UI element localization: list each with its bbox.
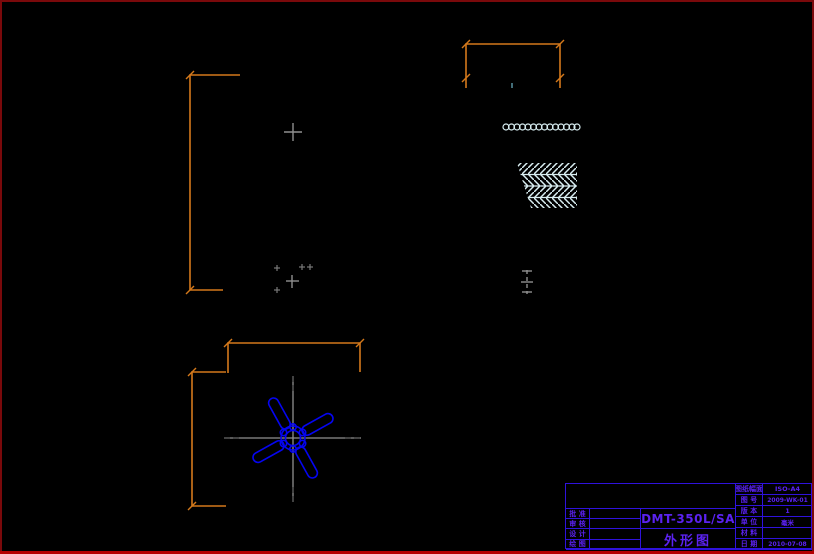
page-border-top (0, 0, 814, 2)
titleblock-check-label: 审 核 (566, 519, 590, 529)
center-mark-cross (284, 123, 302, 141)
bottom-view-centerlines (224, 376, 361, 502)
titleblock-check-value (590, 519, 641, 529)
titleblock-sheetsize-value: ISO-A4 (763, 484, 813, 495)
titleblock-material-label: 材 料 (736, 528, 763, 539)
front-view-center-marks (274, 123, 313, 293)
titleblock-design-label: 设 计 (566, 529, 590, 540)
titleblock-version-value: 1 (763, 506, 813, 517)
front-view-dimension-bracket (186, 71, 240, 294)
drawing-geometry (0, 0, 814, 554)
titleblock-draw-value (590, 540, 641, 551)
side-view-center-mark (521, 270, 533, 294)
small-center-marks (274, 264, 313, 293)
grille-circle-row (503, 124, 580, 130)
center-mark-cross (286, 275, 299, 288)
titleblock-draw-label: 绘 图 (566, 540, 590, 551)
side-view-dimension-bracket (462, 40, 564, 88)
titleblock-product-model: DMT-350L/SA (641, 509, 736, 529)
page-border-left (0, 0, 2, 554)
title-block: 批 准 审 核 设 计 绘 图 DMT-350L/SA 外形图 图纸幅面 图 号… (565, 483, 812, 549)
titleblock-date-label: 日 期 (736, 539, 763, 550)
titleblock-drawingno-value: 2009-WK-01 (763, 495, 813, 506)
titleblock-unit-value: 毫米 (763, 517, 813, 528)
bottom-view-dimension-brackets (188, 339, 364, 510)
titleblock-design-value (590, 529, 641, 540)
hatched-section (515, 163, 579, 209)
titleblock-approve-label: 批 准 (566, 509, 590, 519)
titleblock-material-value (763, 528, 813, 539)
titleblock-date-value: 2010-07-08 (763, 539, 813, 550)
titleblock-drawing-title: 外形图 (641, 529, 736, 550)
titleblock-empty-cell (566, 484, 736, 509)
titleblock-sheetsize-label: 图纸幅面 (736, 484, 763, 495)
cad-drawing-canvas: 批 准 审 核 设 计 绘 图 DMT-350L/SA 外形图 图纸幅面 图 号… (0, 0, 814, 554)
titleblock-drawingno-label: 图 号 (736, 495, 763, 506)
titleblock-approve-value (590, 509, 641, 519)
titleblock-version-label: 版 本 (736, 506, 763, 517)
titleblock-unit-label: 单 位 (736, 517, 763, 528)
